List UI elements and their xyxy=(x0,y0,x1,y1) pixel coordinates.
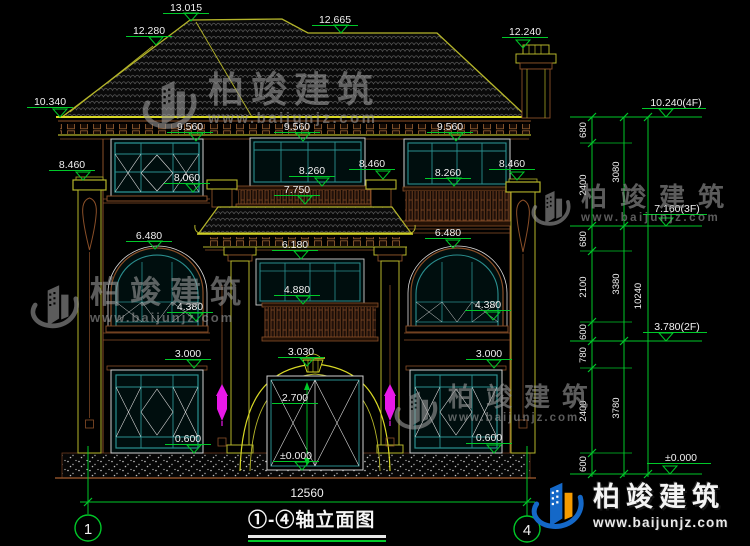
dim-label: 13.015 xyxy=(170,2,202,14)
column-left xyxy=(224,247,256,453)
dim-label: 9.560 xyxy=(284,121,310,133)
dim-label: 4.380 xyxy=(177,301,203,313)
dim-label: 8.260 xyxy=(435,167,461,179)
chain-dim-label: 3780 xyxy=(611,397,622,418)
axis-bubble-4-label: 4 xyxy=(523,522,531,539)
level-marker: 3.000 xyxy=(165,348,211,368)
brand-logo-block: 柏竣建筑 www.baijunjz.com xyxy=(531,474,729,539)
dim-label: 12.240 xyxy=(509,26,541,38)
dim-label: 4.380 xyxy=(475,299,501,311)
chain-dim-label: 680 xyxy=(578,231,589,247)
dim-label: ±0.000 xyxy=(665,452,697,464)
level-marker: 6.480 xyxy=(425,227,471,248)
dim-label: 12.280 xyxy=(133,25,165,37)
overall-width-dim: 12560 xyxy=(290,486,324,500)
title-underline xyxy=(248,535,386,538)
lamp-icon xyxy=(216,384,228,426)
dim-label: 7.160(3F) xyxy=(654,203,700,215)
balcony-railing-2f-center xyxy=(262,303,378,341)
dim-label: 8.460 xyxy=(499,158,525,170)
dim-label: 3.000 xyxy=(476,348,502,360)
chain-dim-label: 2400 xyxy=(578,400,589,421)
dim-label: 0.600 xyxy=(476,432,502,444)
chain-dim-label: 600 xyxy=(578,456,589,472)
chain-dim-label: 600 xyxy=(578,324,589,340)
level-marker: 13.015 xyxy=(163,2,209,21)
chain-dim-label: 2100 xyxy=(578,276,589,297)
dim-label: 8.460 xyxy=(59,159,85,171)
pilaster-left xyxy=(73,177,106,453)
elevation-drawing: 1 4 12560 13.01512.28012.66512.24010.340… xyxy=(0,0,750,546)
dim-label: 0.600 xyxy=(175,433,201,445)
level-marker: 7.160(3F) xyxy=(643,203,707,226)
arched-window-2f-left xyxy=(106,246,208,332)
chain-dim-label: 10240 xyxy=(633,283,644,309)
window-3f-left xyxy=(107,139,207,201)
dim-label: 3.030 xyxy=(288,346,314,358)
brand-url: www.baijunjz.com xyxy=(593,515,729,530)
baijun-brand-logo-icon xyxy=(531,474,587,539)
dim-label: 6.480 xyxy=(136,230,162,242)
dim-label: 3.780(2F) xyxy=(654,321,700,333)
chain-dim-label: 3380 xyxy=(611,273,622,294)
level-marker: 12.665 xyxy=(312,14,358,33)
window-3f-center xyxy=(250,138,365,186)
drawing-title-block: ①-④轴立面图 xyxy=(248,511,386,542)
dim-label: 4.880 xyxy=(284,284,310,296)
dim-label: 9.560 xyxy=(177,121,203,133)
drawing-title: ①-④轴立面图 xyxy=(248,511,386,532)
cad-elevation-screenshot: 1 4 12560 13.01512.28012.66512.24010.340… xyxy=(0,0,750,546)
dim-label: 6.180 xyxy=(282,239,308,251)
level-marker: 3.780(2F) xyxy=(643,321,707,341)
dim-label: 6.480 xyxy=(435,227,461,239)
dim-label: 8.260 xyxy=(299,165,325,177)
title-underline-green xyxy=(248,540,386,542)
dim-label: ±0.000 xyxy=(280,450,312,462)
pilaster-right xyxy=(506,179,540,453)
chain-dim-label: 780 xyxy=(578,347,589,363)
brand-name: 柏竣建筑 xyxy=(593,484,729,511)
dim-label: 8.060 xyxy=(174,172,200,184)
axis-bubble-1: 1 xyxy=(75,515,101,541)
dim-label: 8.460 xyxy=(359,158,385,170)
main-roof xyxy=(62,19,527,117)
dim-label: 10.340 xyxy=(34,96,66,108)
dim-label: 2.700 xyxy=(282,392,308,404)
chain-dim-label: 680 xyxy=(578,122,589,138)
dim-label: 12.665 xyxy=(319,14,351,26)
dim-label: 10.240(4F) xyxy=(650,97,701,109)
dim-label: 7.750 xyxy=(284,184,310,196)
chimney xyxy=(516,45,556,118)
level-marker: ±0.000 xyxy=(647,452,711,474)
wall-lamp-left xyxy=(216,285,228,446)
dim-label: 3.000 xyxy=(175,348,201,360)
chain-dim-label: 2400 xyxy=(578,174,589,195)
window-3f-right xyxy=(404,139,510,188)
chain-dim-label: 3080 xyxy=(611,161,622,182)
level-marker: 3.000 xyxy=(466,348,512,368)
axis-bubble-1-label: 1 xyxy=(84,521,92,538)
dim-label: 9.560 xyxy=(437,121,463,133)
window-2f-center xyxy=(256,259,364,305)
